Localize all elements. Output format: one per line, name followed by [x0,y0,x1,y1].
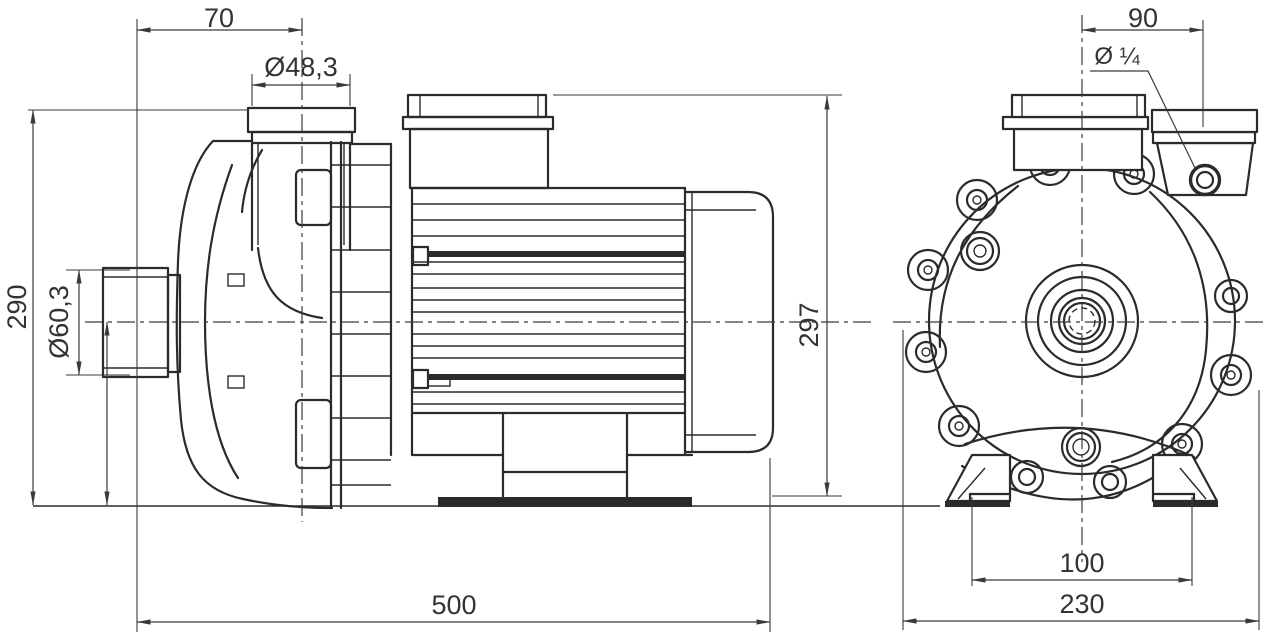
dim-label-48-3: Ø48,3 [264,52,338,82]
dim-suction-od: Ø60,3 [44,270,79,375]
base-plate [438,497,692,507]
dim-discharge-od: Ø48,3 [252,52,350,85]
terminal-box-lid [403,117,553,129]
dim-overall-width: 230 [903,589,1259,621]
dim-label-70: 70 [204,3,234,33]
dim-overall-length: 500 [137,590,770,622]
quarter-inch-plug [1191,166,1220,195]
dim-discharge-offset: 70 [137,3,302,33]
drain-plug [1062,428,1100,466]
dim-label-90: 90 [1128,3,1158,33]
pump-dimensional-drawing: 70 Ø48,3 290 Ø60,3 500 297 [0,0,1280,632]
pump-casing [177,141,391,508]
dim-label-297: 297 [794,302,824,347]
dim-foot-holes: 100 [972,548,1192,580]
technical-drawing-canvas: 70 Ø48,3 290 Ø60,3 500 297 [0,0,1280,632]
side-boss [961,232,999,270]
side-view [33,18,940,522]
dim-front-port-offset: 90 [1082,3,1203,33]
motor-base [412,413,692,507]
dim-label-500: 500 [431,590,476,620]
front-view [893,15,1268,562]
tie-rod-lower [428,374,684,380]
dim-label-100: 100 [1059,548,1104,578]
dim-label-230: 230 [1059,589,1104,619]
tie-rod-upper [428,251,684,257]
dim-label-60-3: Ø60,3 [44,285,74,359]
terminal-box [410,129,548,188]
front-suction-port [1003,95,1148,170]
dim-label-290: 290 [2,284,32,329]
dim-overall-height: 290 [2,110,33,505]
dim-label-quarter: Ø ¼ [1094,43,1140,70]
terminal-box-top [408,95,546,117]
dim-motor-height: 297 [794,96,827,496]
motor [403,95,773,507]
tie-rod-bolt-lower [413,370,428,388]
